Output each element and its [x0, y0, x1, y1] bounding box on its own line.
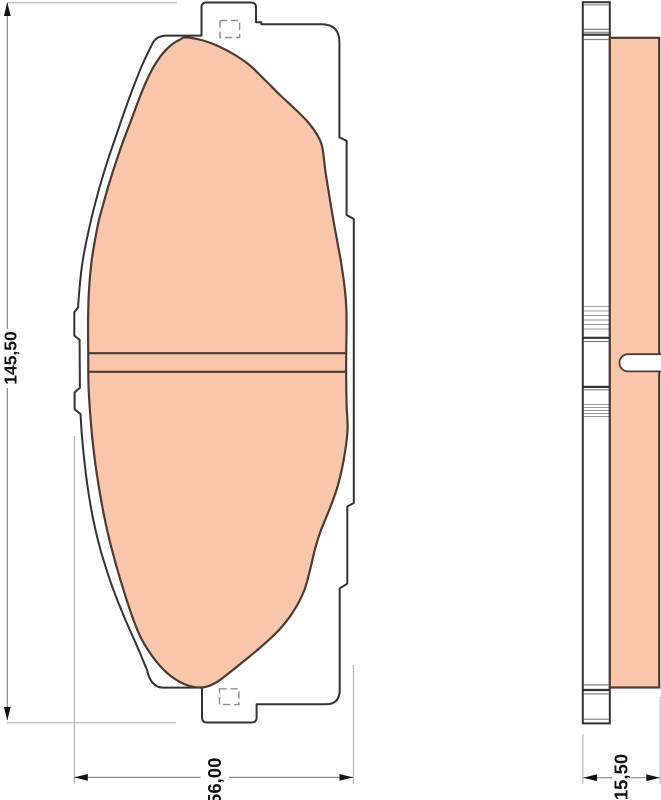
svg-text:15,50: 15,50 [611, 754, 632, 800]
svg-text:56,00: 56,00 [204, 758, 225, 800]
svg-text:145,50: 145,50 [1, 331, 21, 385]
